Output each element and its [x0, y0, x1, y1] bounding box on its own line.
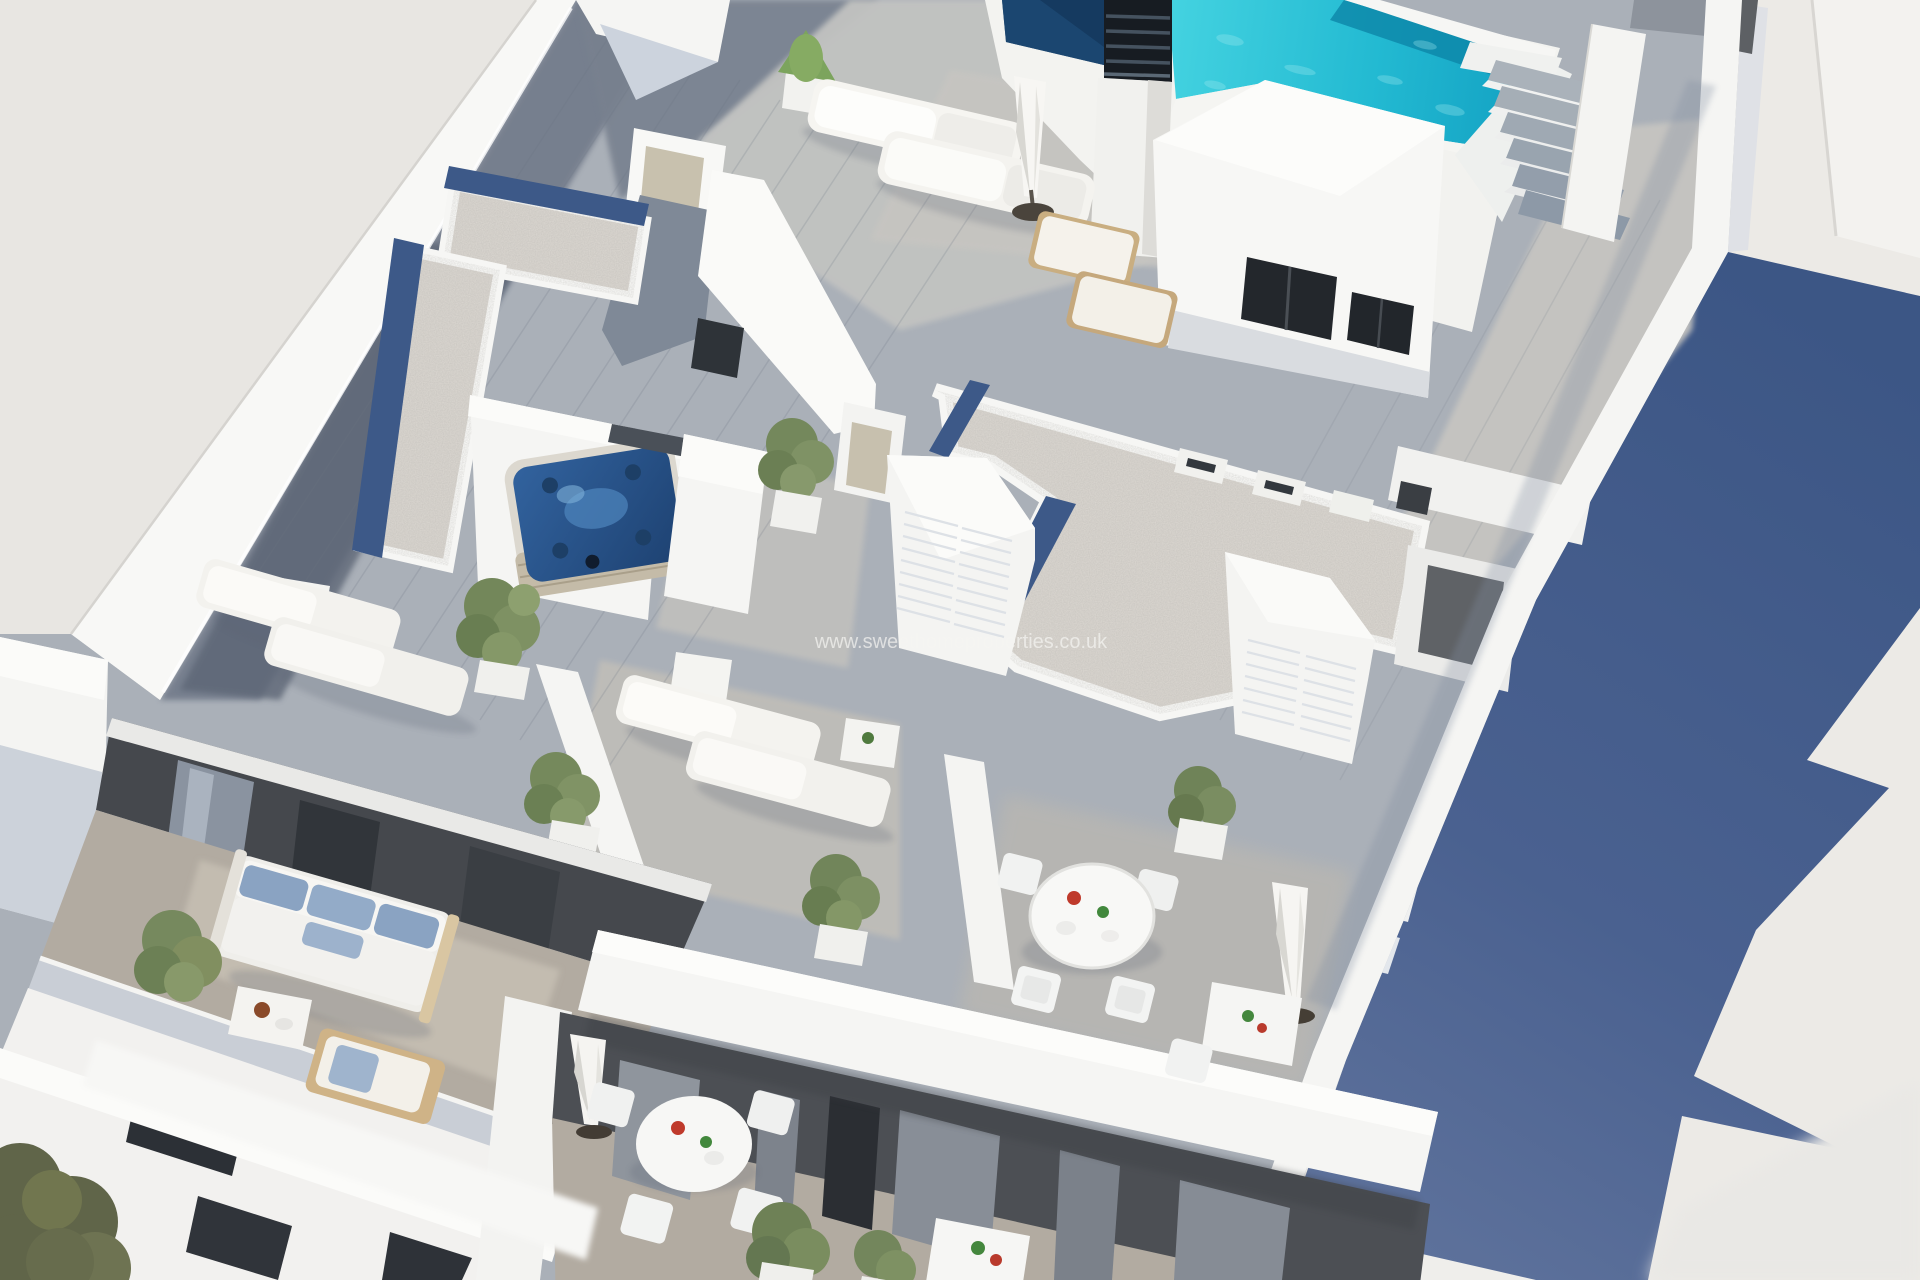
svg-text:www.sweethomeproperties.co.uk: www.sweethomeproperties.co.uk — [814, 631, 1108, 653]
